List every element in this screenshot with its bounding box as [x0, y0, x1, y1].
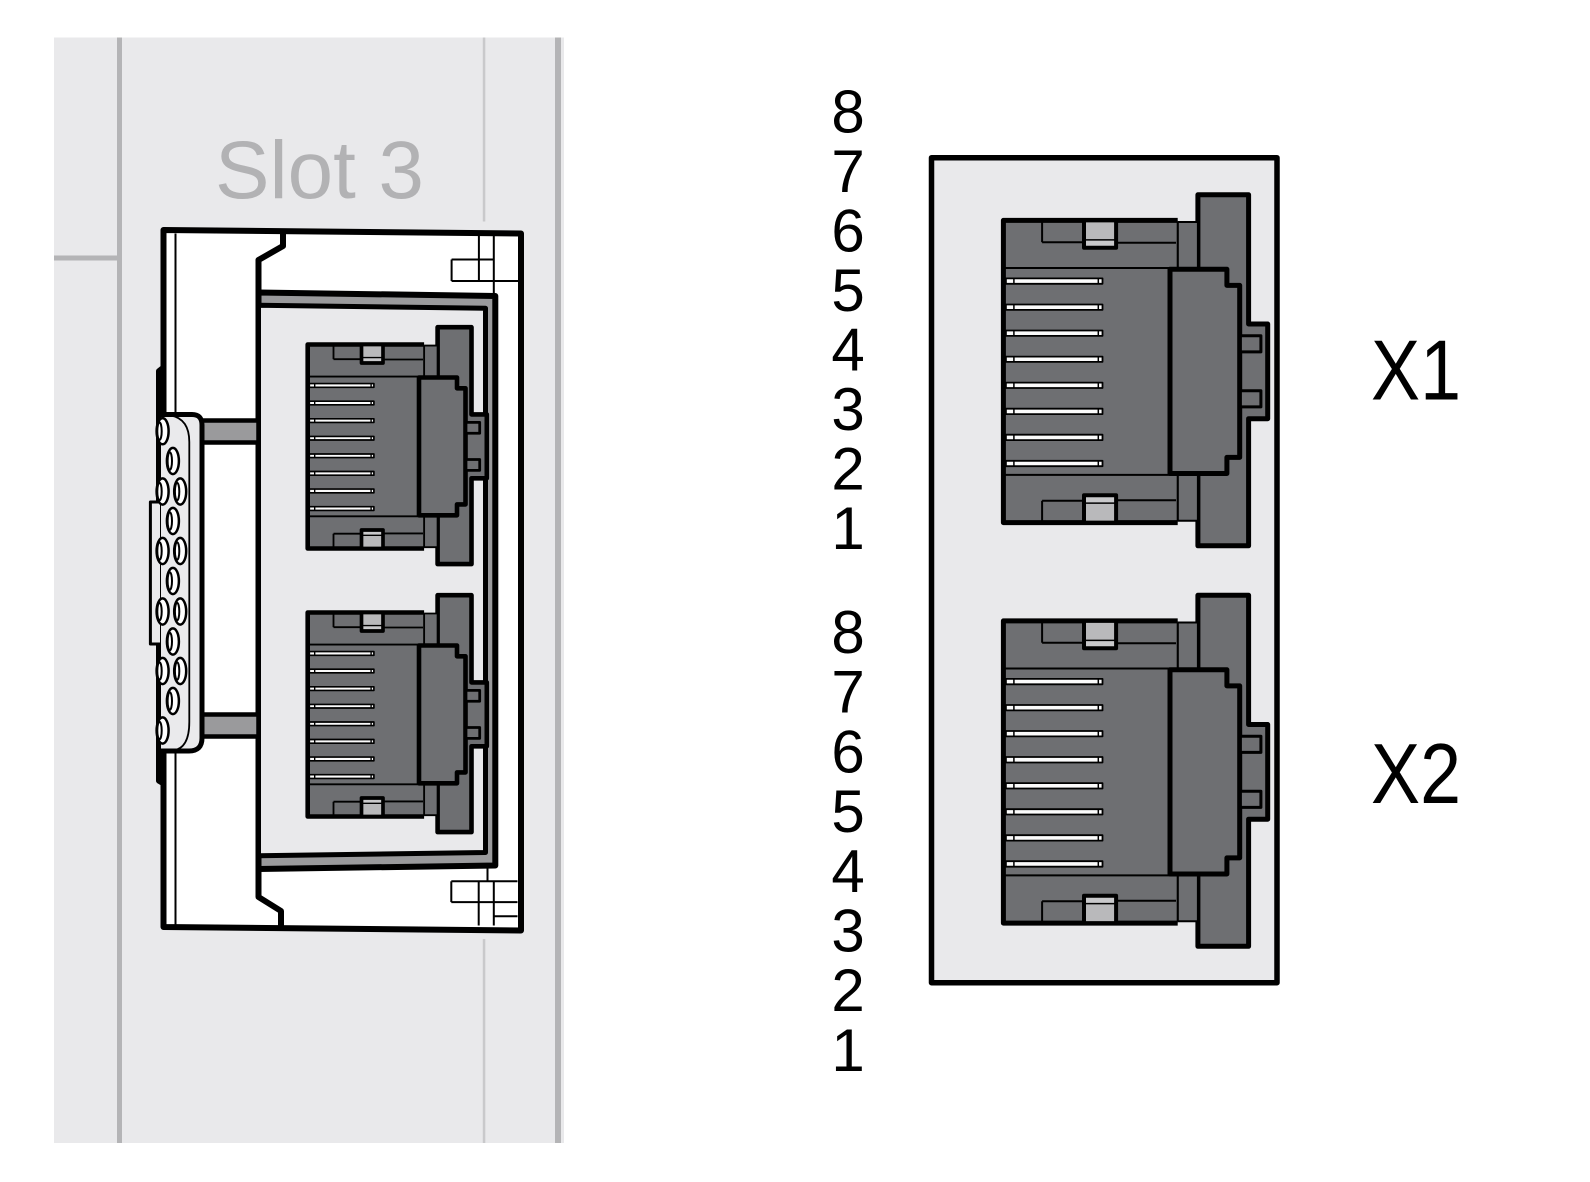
svg-text:6: 6: [831, 198, 864, 265]
svg-text:8: 8: [831, 599, 864, 666]
svg-text:8: 8: [831, 79, 864, 146]
svg-text:5: 5: [831, 778, 864, 845]
svg-text:3: 3: [831, 376, 864, 443]
svg-text:6: 6: [831, 718, 864, 785]
svg-text:4: 4: [831, 838, 864, 905]
svg-text:4: 4: [831, 317, 864, 384]
svg-text:3: 3: [831, 898, 864, 965]
svg-text:2: 2: [831, 436, 864, 503]
svg-text:5: 5: [831, 257, 864, 324]
svg-text:2: 2: [831, 957, 864, 1024]
svg-text:X1: X1: [1371, 324, 1461, 419]
svg-text:X2: X2: [1371, 727, 1461, 822]
svg-text:Slot 3: Slot 3: [215, 125, 424, 216]
svg-text:7: 7: [831, 138, 864, 205]
svg-text:1: 1: [831, 1017, 864, 1084]
svg-text:1: 1: [831, 495, 864, 562]
svg-text:7: 7: [831, 659, 864, 726]
